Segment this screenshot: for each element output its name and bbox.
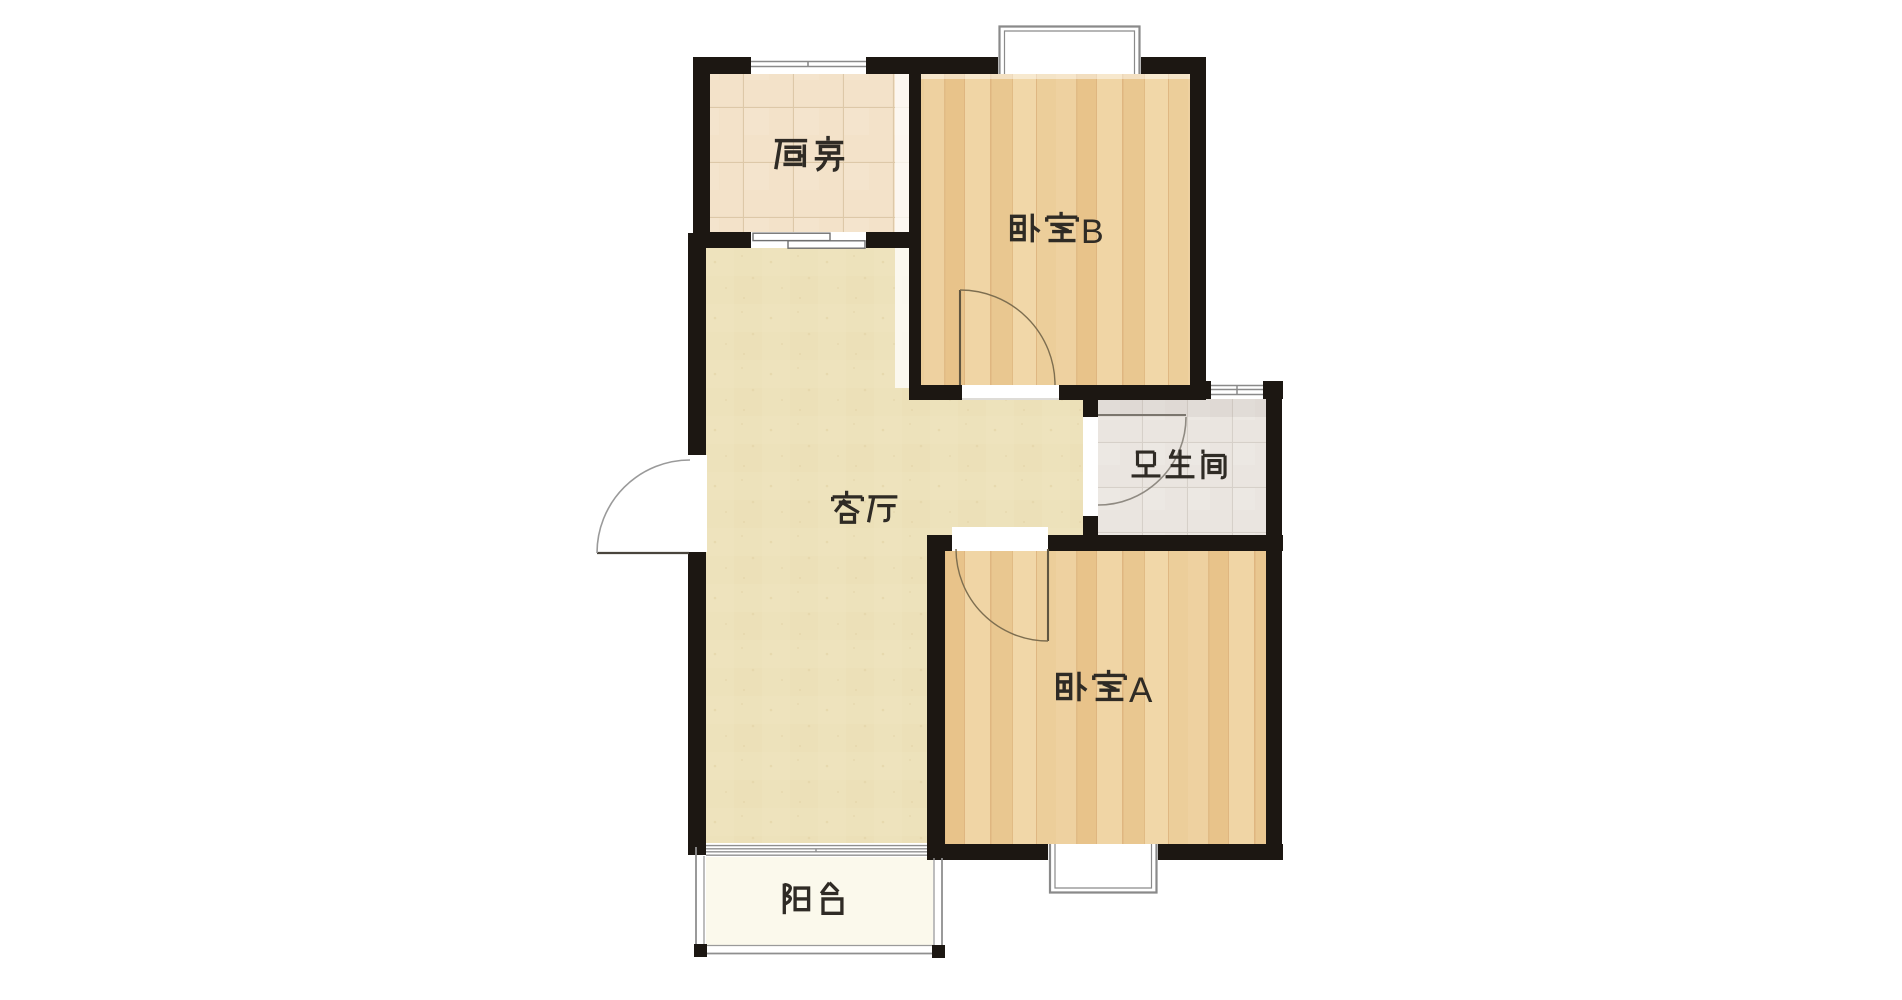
svg-text:A: A bbox=[1129, 671, 1153, 710]
svg-text:B: B bbox=[1081, 213, 1104, 251]
